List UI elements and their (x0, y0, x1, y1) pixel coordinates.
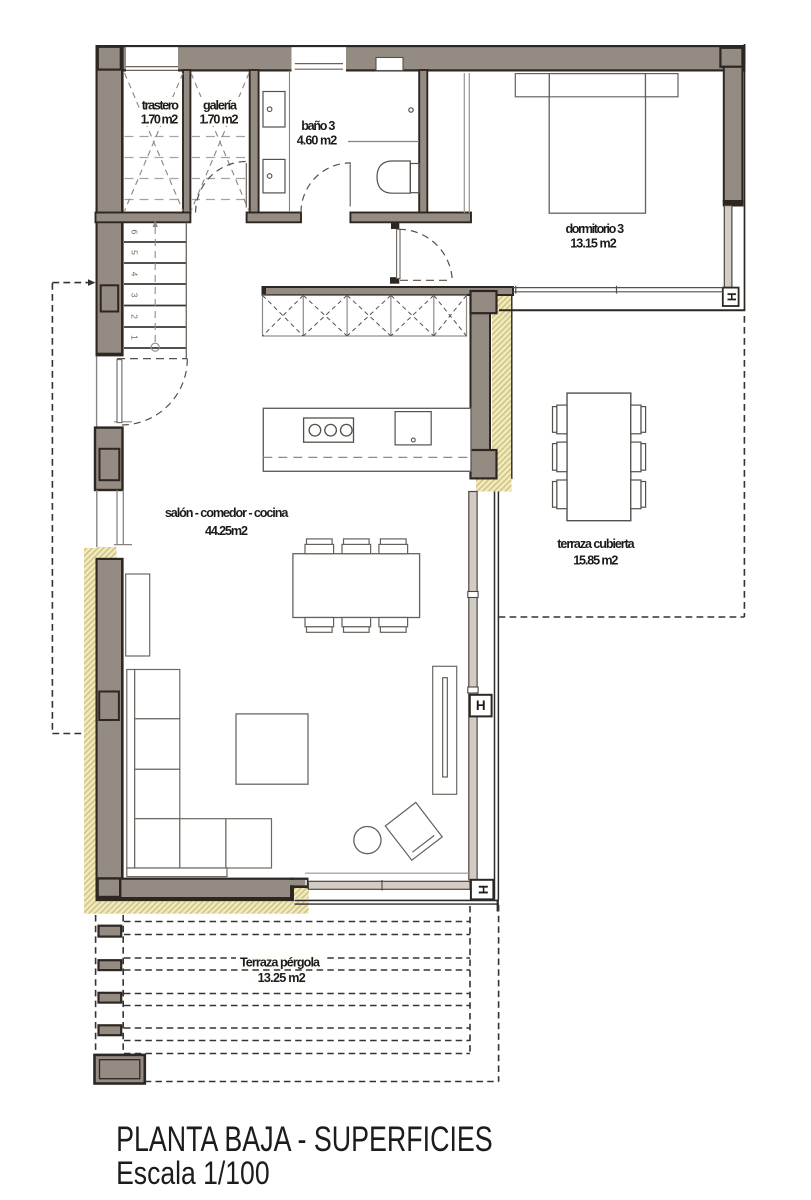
svg-text:H: H (476, 698, 486, 713)
svg-text:15.85 m2: 15.85 m2 (573, 554, 618, 568)
svg-text:terraza cubierta: terraza cubierta (557, 537, 635, 551)
svg-text:H: H (724, 292, 738, 301)
svg-text:dormitorio 3: dormitorio 3 (565, 222, 624, 236)
svg-text:galería: galería (203, 98, 238, 112)
svg-text:1: 1 (129, 335, 139, 340)
svg-text:4.60 m2: 4.60 m2 (297, 133, 338, 147)
svg-text:4: 4 (129, 272, 139, 277)
svg-text:salón - comedor - cocina: salón - comedor - cocina (165, 506, 289, 520)
svg-text:1.70 m2: 1.70 m2 (200, 113, 239, 127)
svg-text:2: 2 (129, 314, 139, 319)
svg-text:44.25m2: 44.25m2 (205, 524, 248, 538)
svg-text:H: H (476, 885, 491, 894)
svg-text:Terraza pérgola: Terraza pérgola (240, 955, 321, 969)
svg-text:6: 6 (129, 230, 139, 235)
svg-text:baño 3: baño 3 (301, 119, 335, 133)
svg-text:3: 3 (129, 293, 139, 298)
svg-text:5: 5 (129, 250, 139, 255)
svg-text:trastero: trastero (142, 98, 179, 112)
svg-text:PLANTA BAJA - SUPERFICIES: PLANTA BAJA - SUPERFICIES (116, 1120, 493, 1159)
svg-text:1.70 m2: 1.70 m2 (141, 113, 179, 127)
svg-text:Escala 1/100: Escala 1/100 (116, 1155, 270, 1191)
svg-text:13.25 m2: 13.25 m2 (258, 971, 306, 985)
svg-text:13.15 m2: 13.15 m2 (570, 236, 617, 250)
